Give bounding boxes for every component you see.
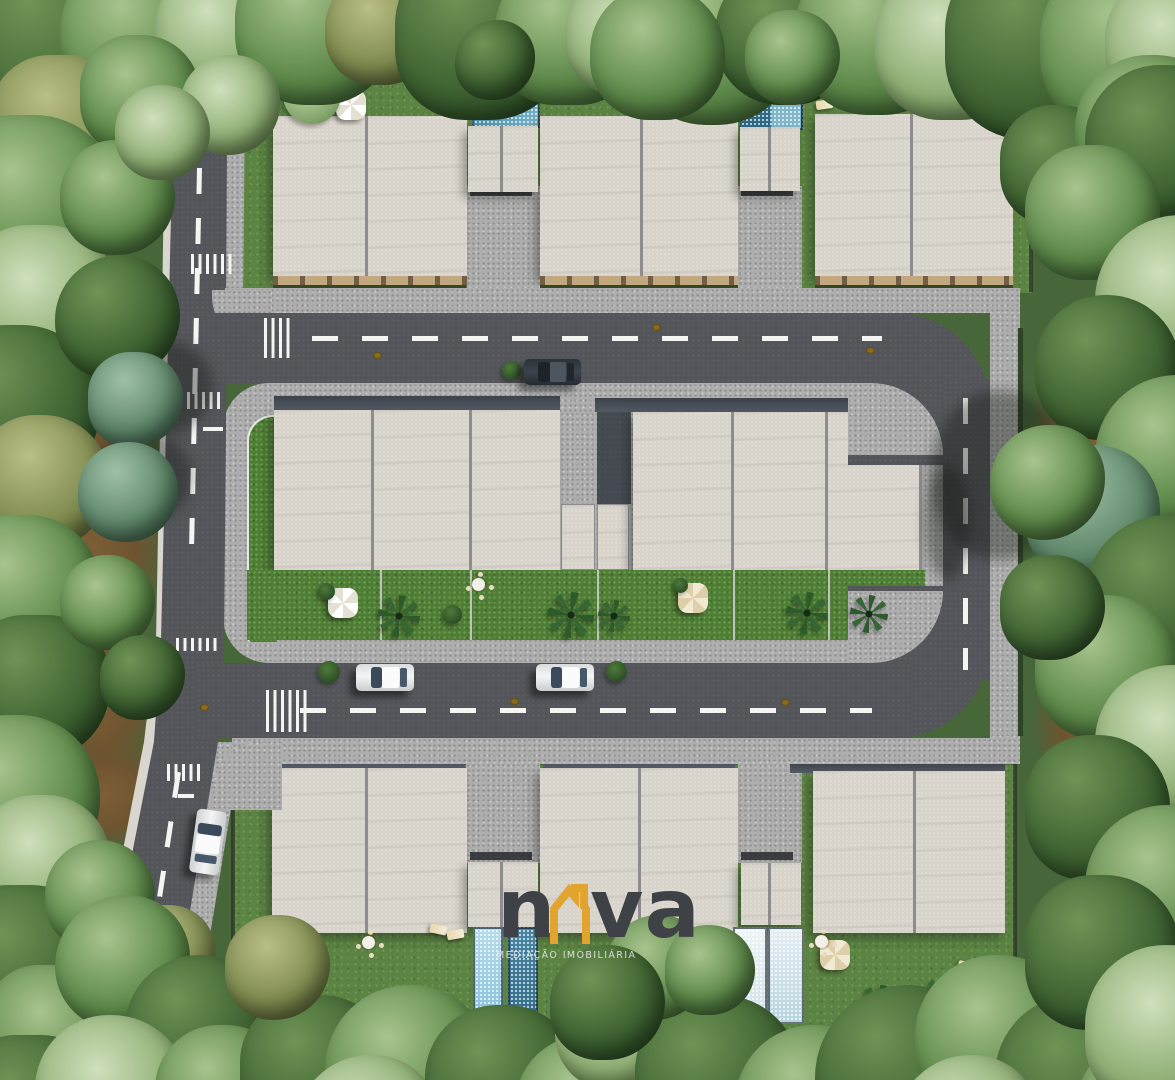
bush-plant: [318, 661, 340, 683]
car-glass: [400, 668, 407, 687]
roof-panel: [771, 863, 801, 925]
car-glass: [194, 853, 217, 864]
tree-shadow: [925, 465, 970, 580]
roof-panel: [273, 116, 365, 276]
car-roof: [550, 362, 566, 382]
entry-roof: [562, 505, 594, 569]
garden-fence: [470, 570, 472, 640]
watermark: n va MEDIAÇÃO IMOBILIÁRIA: [478, 866, 728, 976]
house-middle-left: [274, 410, 560, 570]
aerial-render: n va MEDIAÇÃO IMOBILIÁRIA: [0, 0, 1175, 1080]
entry-roof: [598, 505, 628, 569]
house-facade: [815, 276, 1013, 285]
manhole-cover: [200, 704, 209, 711]
tree-canopy: [115, 85, 210, 180]
roof-panel: [472, 410, 560, 570]
bush-plant: [502, 361, 521, 380]
house-facade: [540, 276, 738, 285]
roof-panel: [368, 768, 467, 933]
roof-panel: [368, 116, 467, 276]
car-glass: [567, 363, 574, 381]
road-ticks: [167, 764, 202, 781]
palm-plant: [786, 592, 828, 634]
crosswalk: [266, 690, 311, 732]
brand-letters-va: va: [590, 869, 701, 951]
manhole-cover: [781, 699, 790, 706]
car-glass: [371, 667, 382, 688]
garage-block: [468, 126, 538, 192]
garden-fence: [597, 570, 599, 640]
car-roof: [195, 833, 221, 854]
garden-table: [362, 936, 375, 949]
house-bottom-right: [813, 771, 1005, 933]
garage-door-shadow: [470, 852, 532, 860]
roof-panel: [734, 412, 825, 570]
car-roof: [562, 667, 579, 688]
crosswalk: [191, 254, 233, 274]
roof-panel: [468, 126, 500, 192]
stop-line: [203, 427, 223, 431]
bush-plant: [318, 583, 335, 600]
car-glass: [551, 667, 562, 688]
garage-block: [740, 127, 800, 191]
palm-plant: [850, 595, 888, 633]
roof-panel: [771, 127, 800, 191]
car-glass: [580, 668, 587, 687]
driveway: [738, 763, 802, 863]
garden-table: [472, 578, 485, 591]
roof-panel: [741, 863, 768, 925]
roof-panel: [740, 127, 768, 191]
roof-panel: [540, 116, 640, 276]
palm-plant: [598, 600, 630, 632]
manhole-cover: [652, 324, 661, 331]
driveway: [466, 186, 540, 292]
garden-fence: [828, 570, 830, 640]
house-top-left: [273, 116, 467, 276]
house-top-right: [815, 114, 1013, 276]
roof-panel: [633, 412, 731, 570]
sidewalk: [232, 738, 1020, 764]
roof-panel: [643, 116, 738, 276]
car-roof: [382, 667, 399, 688]
lane-line: [312, 336, 882, 341]
tree-canopy: [590, 0, 725, 120]
roof-panel: [913, 114, 1013, 276]
driveway: [738, 186, 802, 292]
parked-car-white: [536, 664, 594, 691]
roof-panel: [503, 126, 538, 192]
garage-door-shadow: [741, 852, 793, 860]
car-glass: [538, 362, 550, 382]
lane-line: [300, 708, 872, 713]
house-facade: [273, 276, 467, 285]
bush-plant: [443, 605, 462, 624]
roof-panel: [274, 410, 371, 570]
pool: [768, 927, 804, 1024]
parked-car-dark: [524, 359, 581, 385]
court-wall-shadow: [597, 412, 631, 504]
house-top-middle: [540, 116, 738, 276]
palm-plant: [378, 595, 420, 637]
house-bottom-left: [272, 768, 467, 933]
roof-panel: [272, 768, 365, 933]
roof-panel: [374, 410, 469, 570]
garden-table: [815, 935, 828, 948]
road-ticks: [176, 638, 218, 651]
garden-fence: [733, 570, 735, 640]
palm-plant: [548, 592, 594, 638]
manhole-cover: [866, 347, 875, 354]
manhole-cover: [510, 698, 519, 705]
sidewalk: [225, 288, 1020, 313]
roof-panel: [813, 771, 913, 933]
driveway: [466, 763, 540, 863]
watermark-tagline: MEDIAÇÃO IMOBILIÁRIA: [496, 950, 636, 961]
parked-car-white: [356, 664, 414, 691]
bush-plant: [673, 578, 688, 593]
roof-panel: [815, 114, 910, 276]
crosswalk: [264, 318, 291, 358]
house-icon: [548, 882, 592, 944]
stop-line: [178, 794, 194, 798]
manhole-cover: [373, 352, 382, 359]
garage-block: [741, 863, 801, 925]
bush-plant: [606, 661, 627, 682]
roof-panel: [916, 771, 1005, 933]
